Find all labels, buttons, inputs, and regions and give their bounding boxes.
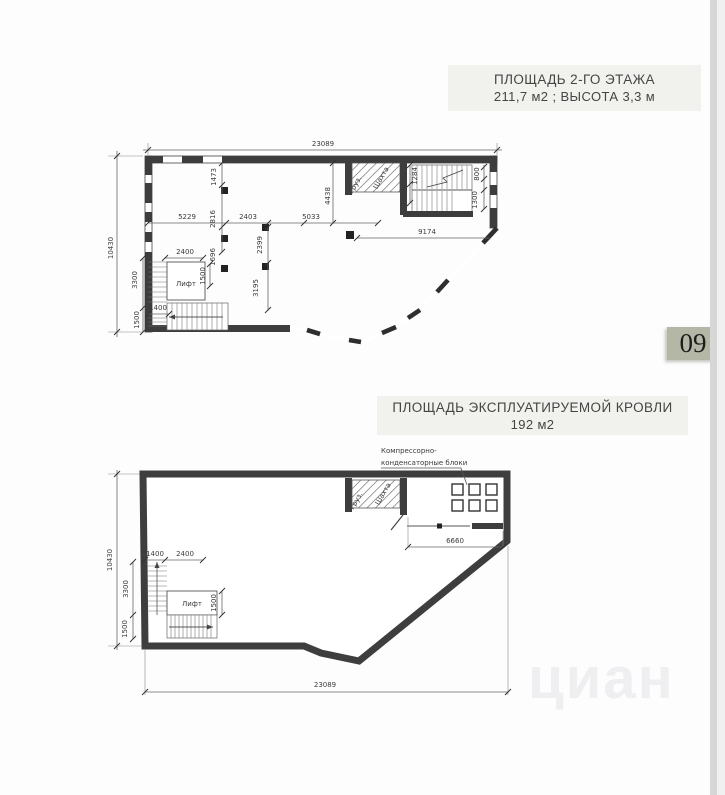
compressor-label-line2: конденсаторные блоки (381, 459, 467, 467)
svg-text:2400: 2400 (176, 550, 194, 558)
svg-text:1400: 1400 (146, 550, 164, 558)
svg-text:6660: 6660 (446, 537, 464, 545)
floor2-title-line1: ПЛОЩАДЬ 2-ГО ЭТАЖА (448, 71, 701, 88)
svg-text:2400: 2400 (176, 248, 194, 256)
svg-text:1473: 1473 (210, 168, 218, 186)
svg-text:10430: 10430 (106, 549, 114, 571)
compressor-label-line1: Компрессорно- (381, 447, 437, 455)
svg-text:9174: 9174 (418, 228, 436, 236)
page-edge-highlight (717, 0, 725, 795)
svg-text:4438: 4438 (324, 187, 332, 205)
roof-title-line2: 192 м2 (377, 416, 688, 433)
svg-text:1300: 1300 (471, 191, 479, 209)
floor2-columns (221, 187, 354, 272)
svg-text:2399: 2399 (256, 236, 264, 254)
floor2-title-line2: 211,7 м2 ; ВЫСОТА 3,3 м (448, 88, 701, 105)
floor2-lift-label: Лифт (176, 280, 196, 288)
svg-text:1284: 1284 (411, 167, 419, 185)
page-edge-shadow (710, 0, 717, 795)
roof-title-line1: ПЛОЩАДЬ ЭКСПЛУАТИРУЕМОЙ КРОВЛИ (377, 399, 688, 416)
floor2-title-box: ПЛОЩАДЬ 2-ГО ЭТАЖА 211,7 м2 ; ВЫСОТА 3,3… (448, 65, 701, 111)
svg-text:2816: 2816 (209, 210, 217, 228)
document-page: ПЛОЩАДЬ 2-ГО ЭТАЖА 211,7 м2 ; ВЫСОТА 3,3… (0, 0, 725, 795)
svg-text:23089: 23089 (314, 681, 336, 689)
floor2-lift-stairs: Лифт (148, 262, 228, 330)
roof-lift-label: Лифт (182, 600, 202, 608)
svg-text:5229: 5229 (178, 213, 196, 221)
svg-text:1500: 1500 (121, 620, 129, 638)
floor2-freight-shaft: Груз. Шахта (345, 163, 407, 215)
svg-text:800: 800 (473, 167, 481, 180)
svg-text:1284: 1284 (400, 188, 408, 206)
dim-total-height: 10430 (107, 237, 115, 259)
roof-title-box: ПЛОЩАДЬ ЭКСПЛУАТИРУЕМОЙ КРОВЛИ 192 м2 (377, 396, 688, 435)
svg-text:1500: 1500 (133, 311, 141, 329)
svg-text:1500: 1500 (210, 594, 218, 612)
svg-text:3300: 3300 (122, 580, 130, 598)
roof-plan-drawing: Груз. Шахта Компрессорно- конденсаторные… (95, 440, 525, 710)
dim-total-width: 23089 (312, 140, 334, 148)
svg-text:1500: 1500 (199, 267, 207, 285)
floor2-plan-drawing: Груз. Шахта (95, 130, 515, 365)
svg-text:2403: 2403 (239, 213, 257, 221)
svg-text:3300: 3300 (131, 271, 139, 289)
svg-text:5033: 5033 (302, 213, 320, 221)
svg-text:1400: 1400 (149, 304, 167, 312)
watermark: циан (528, 645, 718, 712)
svg-text:3195: 3195 (252, 279, 260, 297)
